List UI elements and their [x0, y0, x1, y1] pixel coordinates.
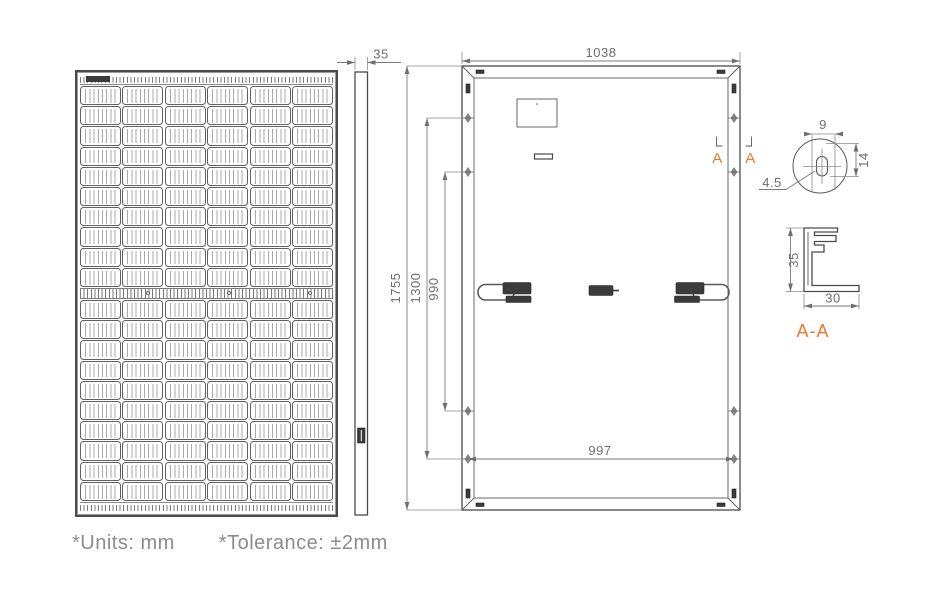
width-label: 1038	[586, 45, 617, 60]
units-note: *Units: mm	[72, 532, 175, 555]
tolerance-note: *Tolerance: ±2mm	[219, 532, 388, 555]
drain-hole	[476, 503, 484, 507]
slot-length-label: 14	[856, 152, 871, 167]
string-box-right	[676, 283, 704, 295]
dim-section-height-35: 35	[786, 228, 804, 292]
drain-hole	[717, 503, 725, 507]
section-width-label: 30	[825, 291, 840, 306]
ground-hole	[732, 84, 736, 93]
drain-hole	[476, 70, 484, 74]
frame-section-detail: 35 30 A-A	[786, 228, 859, 341]
section-marker-left-label: A	[712, 150, 723, 167]
dim-width-1038: 1038	[462, 45, 740, 64]
ground-hole	[466, 489, 470, 498]
drain-hole	[717, 70, 725, 74]
inner-hole-span-label: 990	[426, 277, 441, 300]
ground-hole	[732, 489, 736, 498]
string-box-left	[503, 283, 531, 295]
side-view-frame	[355, 72, 368, 515]
dim-section-width-30: 30	[804, 291, 859, 310]
dim-side-thickness: 35	[337, 47, 401, 71]
drawing-canvas: 35	[0, 0, 950, 600]
ground-hole	[466, 84, 470, 93]
serial-label	[535, 154, 553, 159]
section-title: A-A	[796, 321, 829, 341]
string-box-center	[589, 286, 613, 296]
dim-hole-span-990: 990	[426, 172, 463, 411]
mount-span-label: 997	[588, 443, 611, 458]
side-thickness-label: 35	[373, 47, 388, 62]
outer-hole-span-label: 1300	[408, 273, 423, 304]
dim-height-1755: 1755	[388, 66, 462, 510]
height-label: 1755	[388, 273, 403, 304]
footer-notes: *Units: mm *Tolerance: ±2mm	[72, 532, 388, 555]
dim-slot-width-9: 9	[804, 117, 843, 134]
frame-profile	[804, 228, 859, 292]
dimension-drawing-layer: 35	[0, 0, 950, 600]
hole-diameter-label: 4.5	[762, 175, 782, 190]
connector-left	[506, 296, 531, 303]
dim-mount-span-997: 997	[468, 443, 734, 459]
section-marker-right-label: A	[745, 150, 756, 167]
cable-connectors	[478, 283, 729, 303]
mounting-hole-detail: 9 14 4.5	[759, 117, 871, 193]
section-cut-markers: A A	[712, 137, 756, 168]
junction-box	[517, 99, 557, 127]
slot-width-label: 9	[819, 117, 827, 132]
section-height-label: 35	[786, 252, 801, 267]
connector-right	[675, 296, 700, 303]
